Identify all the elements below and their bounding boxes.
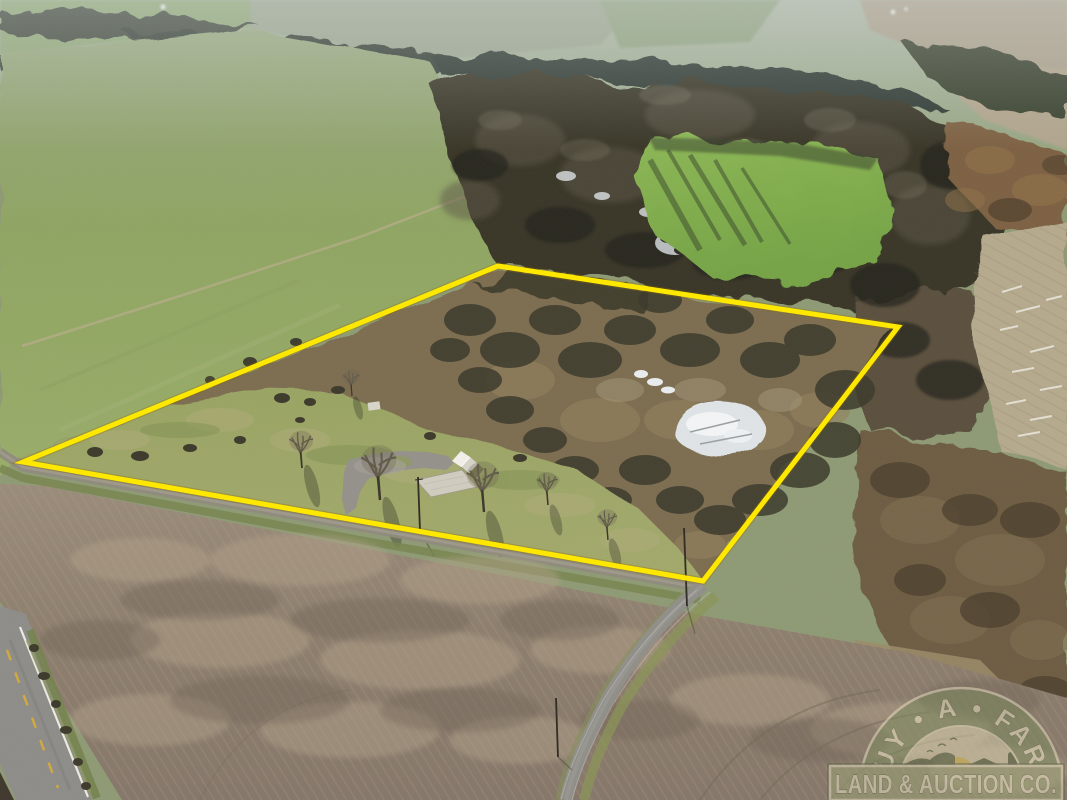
photo-grain bbox=[0, 0, 1067, 800]
logo-banner-text: LAND & AUCTION CO. bbox=[835, 769, 1057, 799]
aerial-photo-canvas: BUY • A • FARM LAND & AUCTION CO. bbox=[0, 0, 1067, 800]
aerial-photo: BUY • A • FARM LAND & AUCTION CO. bbox=[0, 0, 1067, 800]
logo-banner: LAND & AUCTION CO. bbox=[828, 764, 1064, 800]
